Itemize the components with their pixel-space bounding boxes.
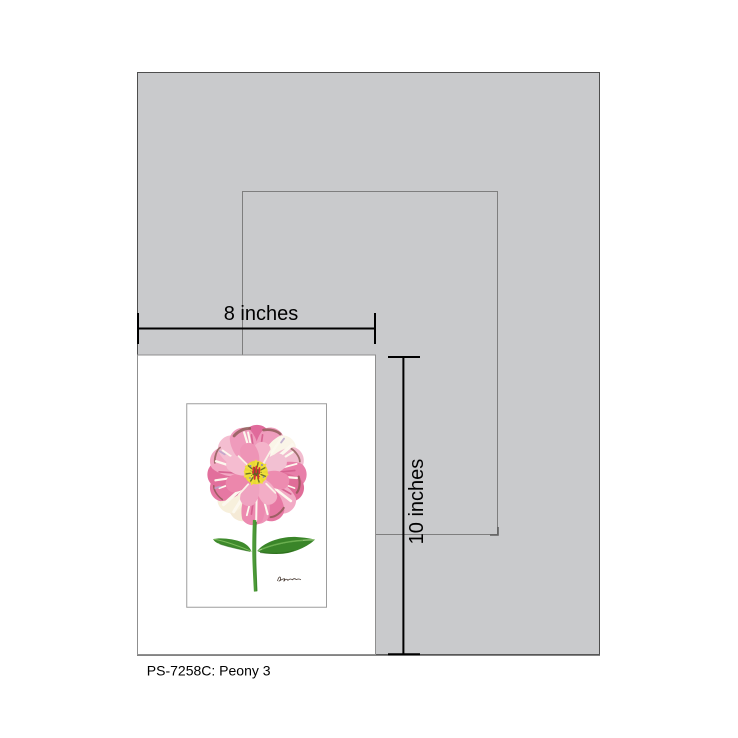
- svg-text:8 inches: 8 inches: [224, 303, 299, 325]
- svg-text:10 inches: 10 inches: [406, 459, 428, 545]
- svg-text:PS-7258C: Peony 3: PS-7258C: Peony 3: [147, 662, 271, 678]
